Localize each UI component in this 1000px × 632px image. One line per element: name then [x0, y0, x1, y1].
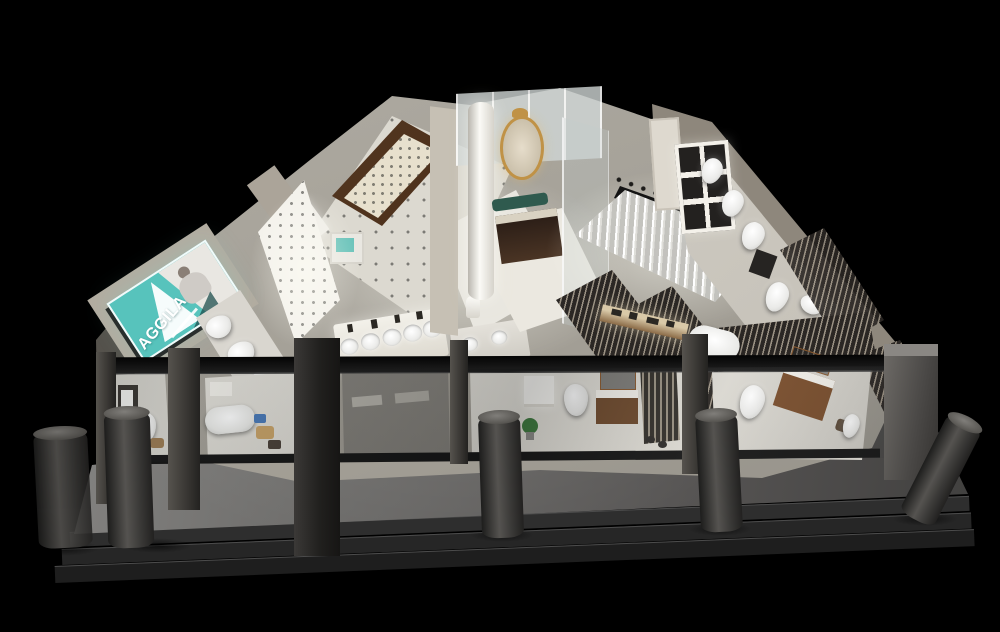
gold-mirror-crown	[512, 108, 528, 118]
front-pillar	[695, 411, 743, 533]
front-pillar	[33, 429, 93, 550]
display-basin	[402, 323, 423, 343]
vignette-left-wall	[430, 106, 458, 335]
storefront-pier	[168, 348, 200, 510]
shelf-item	[611, 309, 622, 317]
storefront-pier	[450, 340, 468, 464]
shelf-item	[629, 312, 638, 321]
white-column	[468, 102, 494, 300]
gold-mirror	[500, 116, 544, 180]
front-pillar	[104, 409, 155, 549]
window-frame	[674, 140, 736, 234]
showroom-render: AGGILA	[0, 0, 1000, 632]
display-basin	[490, 329, 508, 345]
faucet-display-item	[394, 314, 400, 323]
faucet-display-item	[371, 319, 378, 329]
display-basin	[339, 337, 359, 356]
front-pillar	[478, 413, 524, 538]
display-basin	[381, 327, 402, 347]
shelf-item	[646, 317, 659, 326]
faucet-display-item	[416, 311, 423, 320]
shelf-item	[666, 320, 675, 328]
storefront-pier-large	[294, 338, 340, 556]
display-basin	[360, 332, 381, 352]
faucet-display-item	[347, 324, 353, 333]
